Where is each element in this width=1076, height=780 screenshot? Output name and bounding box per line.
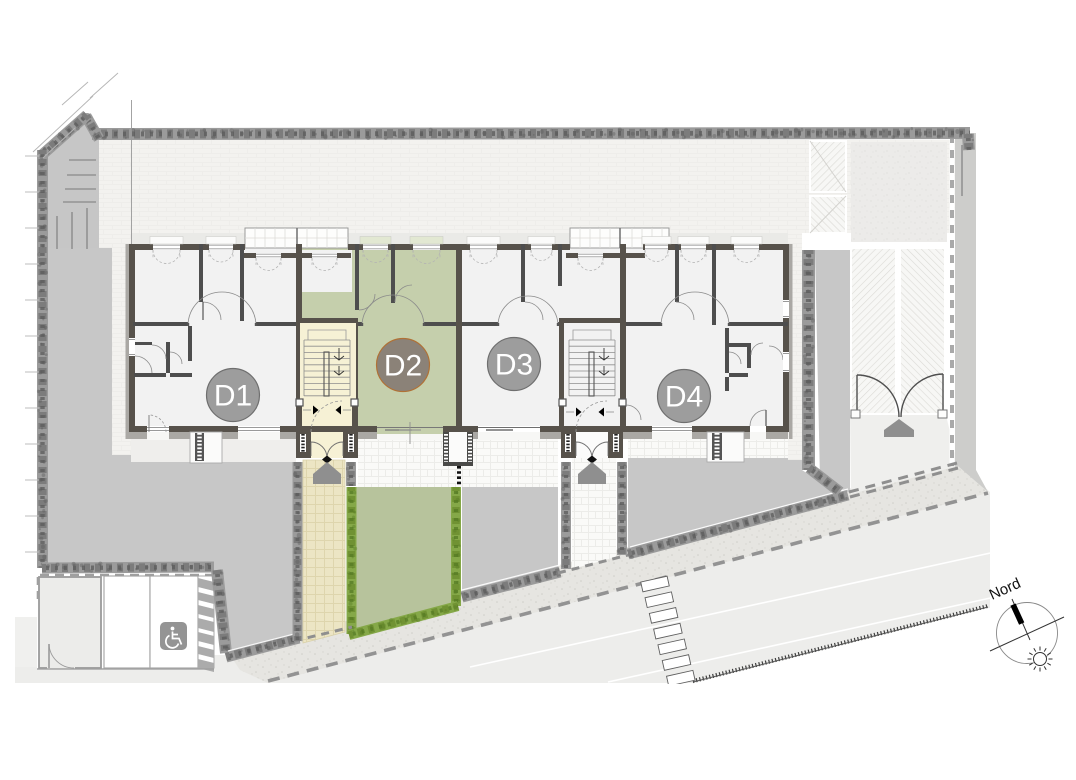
svg-text:D3: D3 xyxy=(495,349,533,382)
svg-text:D4: D4 xyxy=(665,381,703,414)
svg-text:D1: D1 xyxy=(214,380,252,413)
svg-text:D2: D2 xyxy=(384,350,422,383)
